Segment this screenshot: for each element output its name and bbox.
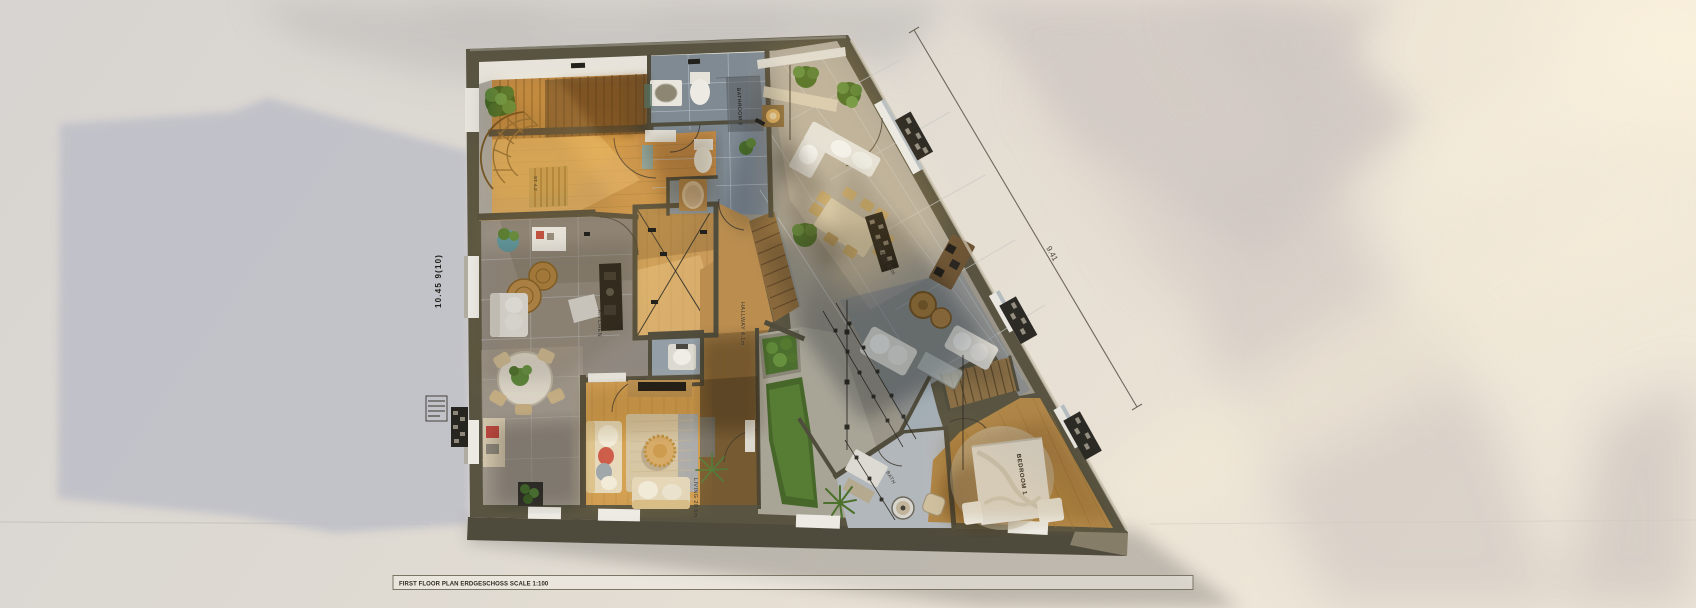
svg-text:LIVING 20.5m: LIVING 20.5m <box>692 478 698 518</box>
svg-text:FIRST FLOOR PLAN ERDGESCHOSS: FIRST FLOOR PLAN ERDGESCHOSS SCALE 1:100 <box>399 582 549 588</box>
svg-text:HALLWAY 4.1m: HALLWAY 4.1m <box>739 302 745 346</box>
svg-text:10.45 9(10): 10.45 9(10) <box>434 254 443 308</box>
svg-text:ST 4.2: ST 4.2 <box>533 176 538 191</box>
svg-text:KITCHEN: KITCHEN <box>596 310 602 337</box>
